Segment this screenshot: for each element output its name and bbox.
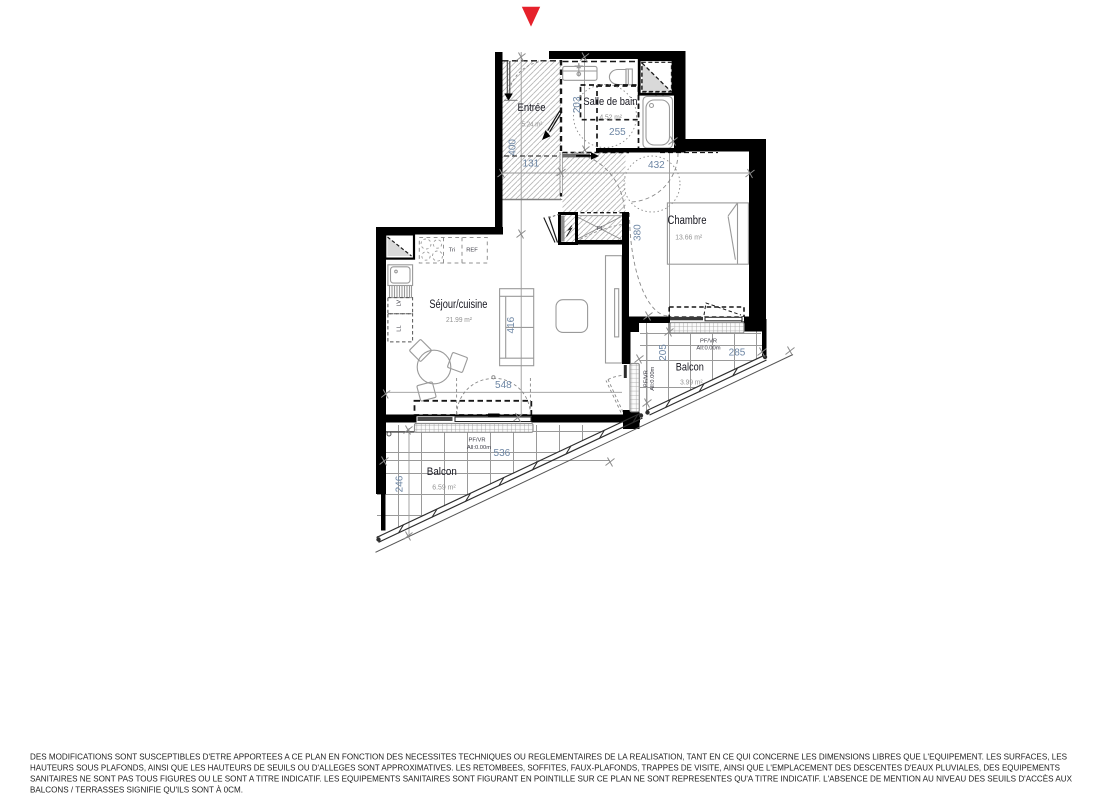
- svg-text:400: 400: [508, 139, 519, 156]
- svg-text:548: 548: [495, 380, 512, 391]
- svg-text:Salle de bain: Salle de bain: [583, 96, 637, 108]
- svg-text:LV: LV: [397, 300, 403, 307]
- svg-text:131: 131: [523, 159, 540, 170]
- svg-text:PF/VR: PF/VR: [700, 339, 717, 345]
- svg-text:285: 285: [729, 348, 746, 359]
- svg-text:432: 432: [648, 160, 665, 171]
- svg-text:SANITAIRES NE SONT PAS TOUS FI: SANITAIRES NE SONT PAS TOUS FIGURES OU L…: [30, 774, 1072, 784]
- svg-text:PL: PL: [597, 226, 605, 232]
- svg-text:REF: REF: [466, 248, 478, 254]
- svg-text:BALCONS / TERRASSES SIGNIFIE Q: BALCONS / TERRASSES SIGNIFIE QU'ILS SONT…: [30, 785, 243, 795]
- svg-text:All:0.00m: All:0.00m: [650, 366, 656, 390]
- svg-text:536: 536: [494, 448, 511, 459]
- svg-text:DES MODIFICATIONS SONT SUSCEPT: DES MODIFICATIONS SONT SUSCEPTIBLES D'ET…: [30, 752, 1067, 762]
- svg-text:Chambre: Chambre: [668, 215, 707, 227]
- svg-text:246: 246: [395, 475, 406, 492]
- svg-text:380: 380: [633, 224, 644, 241]
- svg-text:Balcon: Balcon: [427, 466, 457, 478]
- svg-text:4.52 m²: 4.52 m²: [599, 113, 622, 122]
- svg-text:416: 416: [506, 316, 517, 333]
- svg-text:Balcon: Balcon: [676, 362, 704, 374]
- svg-text:6.59 m²: 6.59 m²: [432, 483, 456, 492]
- svg-text:21.99 m²: 21.99 m²: [446, 315, 472, 324]
- svg-text:All:0.00m: All:0.00m: [467, 445, 491, 451]
- svg-text:PF/VR: PF/VR: [468, 438, 485, 444]
- svg-text:205: 205: [658, 344, 669, 361]
- svg-text:All:0.00m: All:0.00m: [696, 346, 720, 352]
- svg-text:5.24 m²: 5.24 m²: [522, 120, 543, 129]
- svg-text:13.66 m²: 13.66 m²: [675, 233, 702, 242]
- svg-text:3.99 m²: 3.99 m²: [680, 378, 703, 387]
- svg-text:LL: LL: [397, 325, 403, 332]
- svg-text:Séjour/cuisine: Séjour/cuisine: [429, 299, 487, 311]
- svg-text:Entrée: Entrée: [518, 102, 546, 114]
- svg-text:HAUTEURS SOUS PLAFONDS, AINSI: HAUTEURS SOUS PLAFONDS, AINSI QUE LES HA…: [30, 763, 1060, 773]
- svg-text:255: 255: [609, 127, 626, 138]
- svg-text:Tri: Tri: [449, 248, 456, 254]
- svg-text:203: 203: [572, 96, 583, 113]
- svg-text:PF/VR: PF/VR: [644, 370, 650, 387]
